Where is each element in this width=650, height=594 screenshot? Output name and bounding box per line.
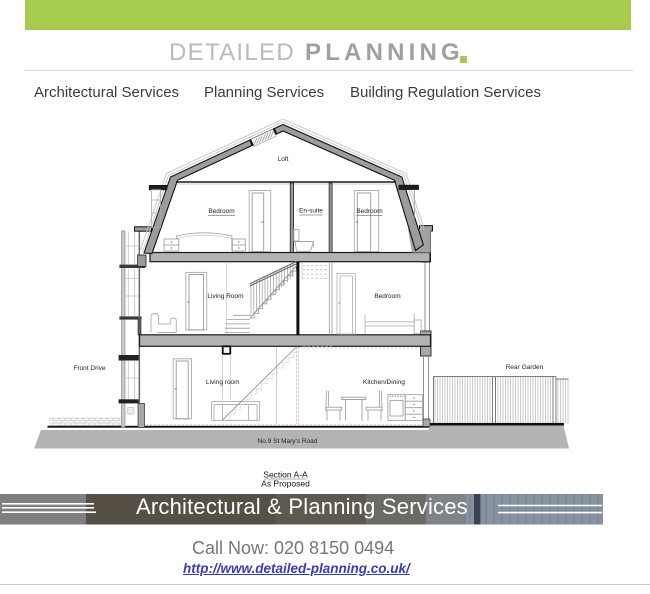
svg-text:Bedroom: Bedroom bbox=[356, 208, 382, 215]
svg-text:Rear Garden: Rear Garden bbox=[506, 364, 544, 371]
svg-text:As Proposed: As Proposed bbox=[261, 479, 310, 489]
svg-text:Bedroom: Bedroom bbox=[374, 293, 400, 300]
svg-text:En-suite: En-suite bbox=[299, 208, 323, 215]
svg-text:Front Drive: Front Drive bbox=[73, 365, 106, 372]
svg-text:No.9 St Mary's Road: No.9 St Mary's Road bbox=[258, 438, 318, 445]
svg-text:Living room: Living room bbox=[206, 379, 240, 386]
svg-text:Kitchen/Dining: Kitchen/Dining bbox=[363, 379, 405, 386]
svg-text:Bedroom: Bedroom bbox=[208, 208, 234, 215]
svg-text:Living Room: Living Room bbox=[207, 293, 243, 300]
svg-text:Loft: Loft bbox=[278, 156, 289, 163]
